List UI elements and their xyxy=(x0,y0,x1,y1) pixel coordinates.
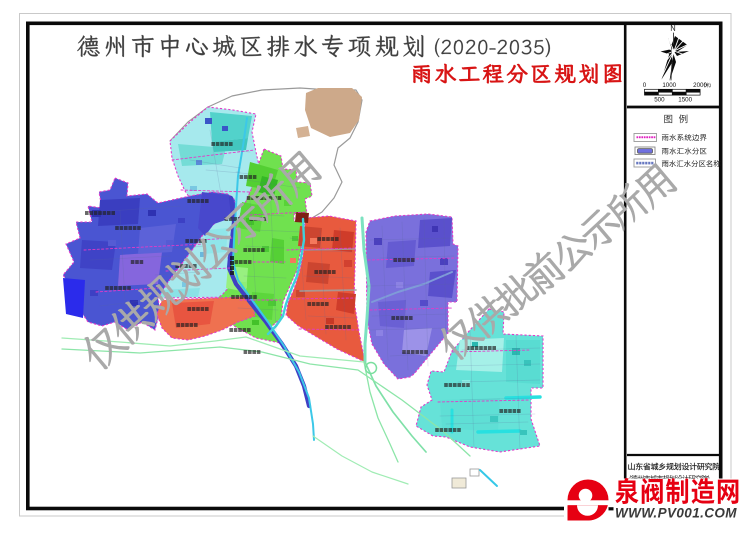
svg-text:2000: 2000 xyxy=(693,82,707,89)
svg-text:500: 500 xyxy=(654,97,665,104)
svg-text:0: 0 xyxy=(643,82,647,89)
svg-text:WWW.PV001.COM: WWW.PV001.COM xyxy=(615,506,737,521)
svg-text:1500: 1500 xyxy=(678,97,692,104)
svg-text:1000: 1000 xyxy=(662,82,676,89)
